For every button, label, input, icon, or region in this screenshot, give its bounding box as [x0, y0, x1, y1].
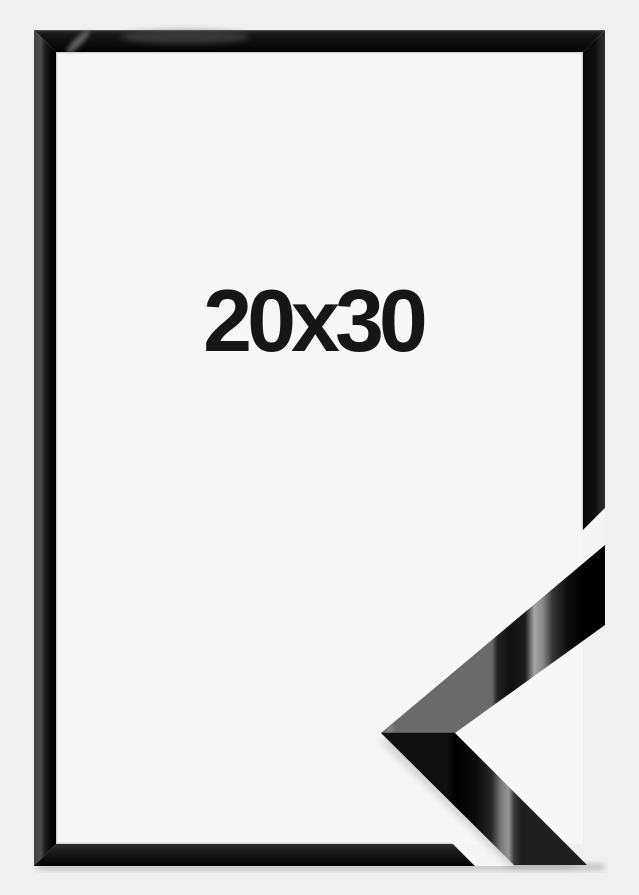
frame-side-right [583, 30, 605, 530]
frame-interior-mat [56, 52, 583, 844]
frame-side-left [34, 30, 56, 866]
gloss-reflection-top [120, 30, 250, 44]
size-label: 20x30 [203, 271, 425, 370]
frame-side-bottom [34, 844, 475, 866]
frame-side-top [34, 30, 605, 52]
frame-product-image: 20x30 [0, 0, 639, 895]
frame-illustration: 20x30 [0, 0, 639, 895]
